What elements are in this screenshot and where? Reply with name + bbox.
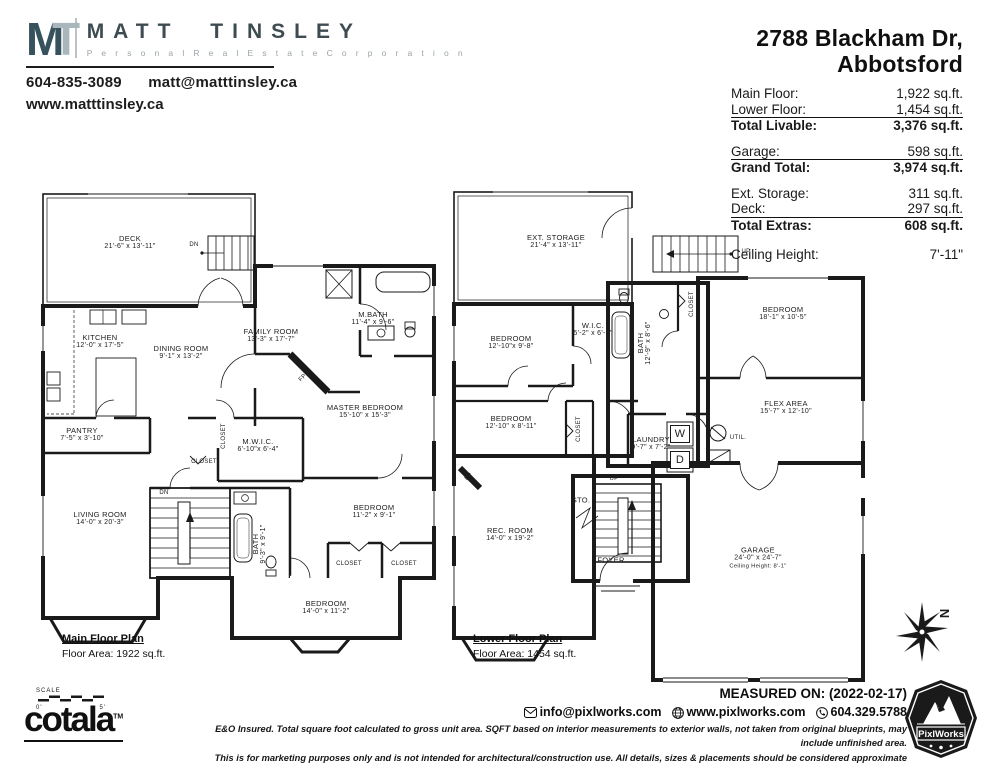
room-label: KITCHEN12'-0" x 17'-5" [76, 333, 124, 351]
address-line-2: Abbotsford [756, 52, 963, 78]
plan-mark: DN [189, 242, 198, 248]
room-label: DINING ROOM9'-1" x 13'-2" [154, 344, 209, 362]
area-total-row: Grand Total:3,974 sq.ft. [731, 159, 963, 176]
room-label: LIVING ROOM14'-0" x 20'-3" [73, 510, 126, 528]
room-label: FAMILY ROOM13'-3" x 17'-7" [244, 327, 299, 345]
area-total-row: Total Livable:3,376 sq.ft. [731, 117, 963, 134]
lower-floor-title: Lower Floor Plan [473, 633, 562, 645]
agent-name: MATT TINSLEY [87, 20, 466, 44]
room-label: REC. ROOM14'-0" x 19'-2" [486, 526, 534, 544]
disclaimer-line-1: E&O Insured. Total square foot calculate… [207, 722, 907, 751]
room-label: BEDROOM18'-1" x 10'-5" [759, 305, 807, 323]
agent-phone: 604-835-3089 [26, 74, 122, 91]
property-address: 2788 Blackham Dr, Abbotsford [756, 26, 963, 78]
mt-logo: M T [26, 16, 69, 62]
plan-mark: CLOSET [191, 459, 217, 465]
area-row: Main Floor:1,922 sq.ft. [731, 86, 963, 102]
brand-rule [26, 66, 274, 68]
address-line-1: 2788 Blackham Dr, [756, 26, 963, 52]
main-floor-area-note: Floor Area: 1922 sq.ft. [62, 648, 165, 660]
room-label: EXT. STORAGE21'-4" x 13'-11" [527, 233, 585, 251]
disclaimer-line-2: This is for marketing purposes only and … [207, 751, 907, 764]
trademark-symbol: TM [113, 713, 123, 720]
room-label: BATH9'-3" x 9'-1" [251, 524, 269, 563]
badge-label: PixlWorks [918, 729, 964, 740]
contact-phone-item: 604.329.5788 [816, 705, 907, 719]
contact-website-item: www.pixlworks.com [672, 705, 806, 719]
room-label: PANTRY7'-5" x 3'-10" [60, 426, 103, 444]
north-compass: N [892, 600, 958, 666]
room-label: LAUNDRY9'-7" x 7'-2" [631, 435, 670, 453]
plan-mark: D [670, 451, 690, 469]
plan-mark: CLOSET [576, 416, 582, 442]
flyer-page: M T MATT TINSLEY P e r s o n a l R e a l… [0, 0, 985, 764]
plan-mark: CLOSET [336, 561, 362, 567]
plan-mark: UTIL. [730, 435, 746, 441]
room-label: GARAGE24'-0" x 24'-7"Ceiling Height: 8'-… [729, 545, 786, 570]
logo-letter-t: T [52, 16, 80, 62]
plan-mark: UP [742, 249, 751, 255]
pixlworks-contact-row: info@pixlworks.com www.pixlworks.com 604… [524, 705, 907, 719]
room-label: BEDROOM12'-10"x 9'-8" [488, 334, 533, 352]
plan-mark: CLOSET [689, 291, 695, 317]
room-label: FOYER [597, 555, 624, 564]
main-floor-title: Main Floor Plan [62, 633, 144, 645]
measured-on-date: MEASURED ON: (2022-02-17) [719, 686, 907, 701]
cotala-logo: cotalaTM [24, 702, 123, 742]
email-icon [524, 707, 537, 718]
compass-north-letter: N [937, 609, 952, 618]
contact-email-item: info@pixlworks.com [524, 705, 662, 719]
area-row: Lower Floor:1,454 sq.ft. [731, 102, 963, 118]
room-label: BEDROOM14'-0" x 11'-2" [302, 599, 349, 617]
lower-floor-plan: EXT. STORAGE21'-4" x 13'-11"BEDROOM12'-1… [448, 186, 876, 691]
plan-mark: DN [159, 490, 168, 496]
area-row: Garage:598 sq.ft. [731, 144, 963, 160]
plan-mark: CLOSET [391, 561, 417, 567]
room-label: FLEX AREA15'-7" x 12'-10" [760, 399, 812, 417]
room-label: MASTER BEDROOM15'-10" x 15'-3" [327, 403, 403, 421]
main-floor-plan: DECK21'-6" x 13'-11"KITCHEN12'-0" x 17'-… [38, 186, 443, 656]
agent-email: matt@matttinsley.ca [148, 74, 297, 91]
room-label: BEDROOM12'-10" x 8'-11" [485, 414, 536, 432]
plan-mark: CLOSET [221, 423, 227, 449]
pixlworks-badge: PixlWorks [903, 678, 979, 760]
room-label: M.BATH11'-4" x 9'-6" [352, 310, 395, 328]
plan-mark: UP [610, 476, 619, 482]
phone-icon [816, 707, 828, 719]
room-label: W.I.C.5'-2" x 6'-3" [573, 321, 612, 339]
globe-icon [672, 707, 684, 719]
room-label: BATH12'-9" x 8'-6" [636, 321, 654, 364]
agent-brand-block: M T MATT TINSLEY P e r s o n a l R e a l… [26, 16, 466, 113]
room-label: DECK21'-6" x 13'-11" [104, 234, 155, 252]
lower-floor-area-note: Floor Area: 1454 sq.ft. [473, 648, 576, 660]
room-label: STO. [572, 495, 591, 504]
room-label: BEDROOM11'-2" x 9'-1" [353, 503, 396, 521]
disclaimer-text: E&O Insured. Total square foot calculate… [207, 722, 907, 764]
agent-tagline: P e r s o n a l R e a l E s t a t e C o … [87, 48, 466, 58]
plan-mark: W [670, 425, 690, 443]
room-label: M.W.I.C.6'-10"x 6'-4" [237, 437, 278, 455]
agent-website: www.matttinsley.ca [26, 96, 466, 113]
